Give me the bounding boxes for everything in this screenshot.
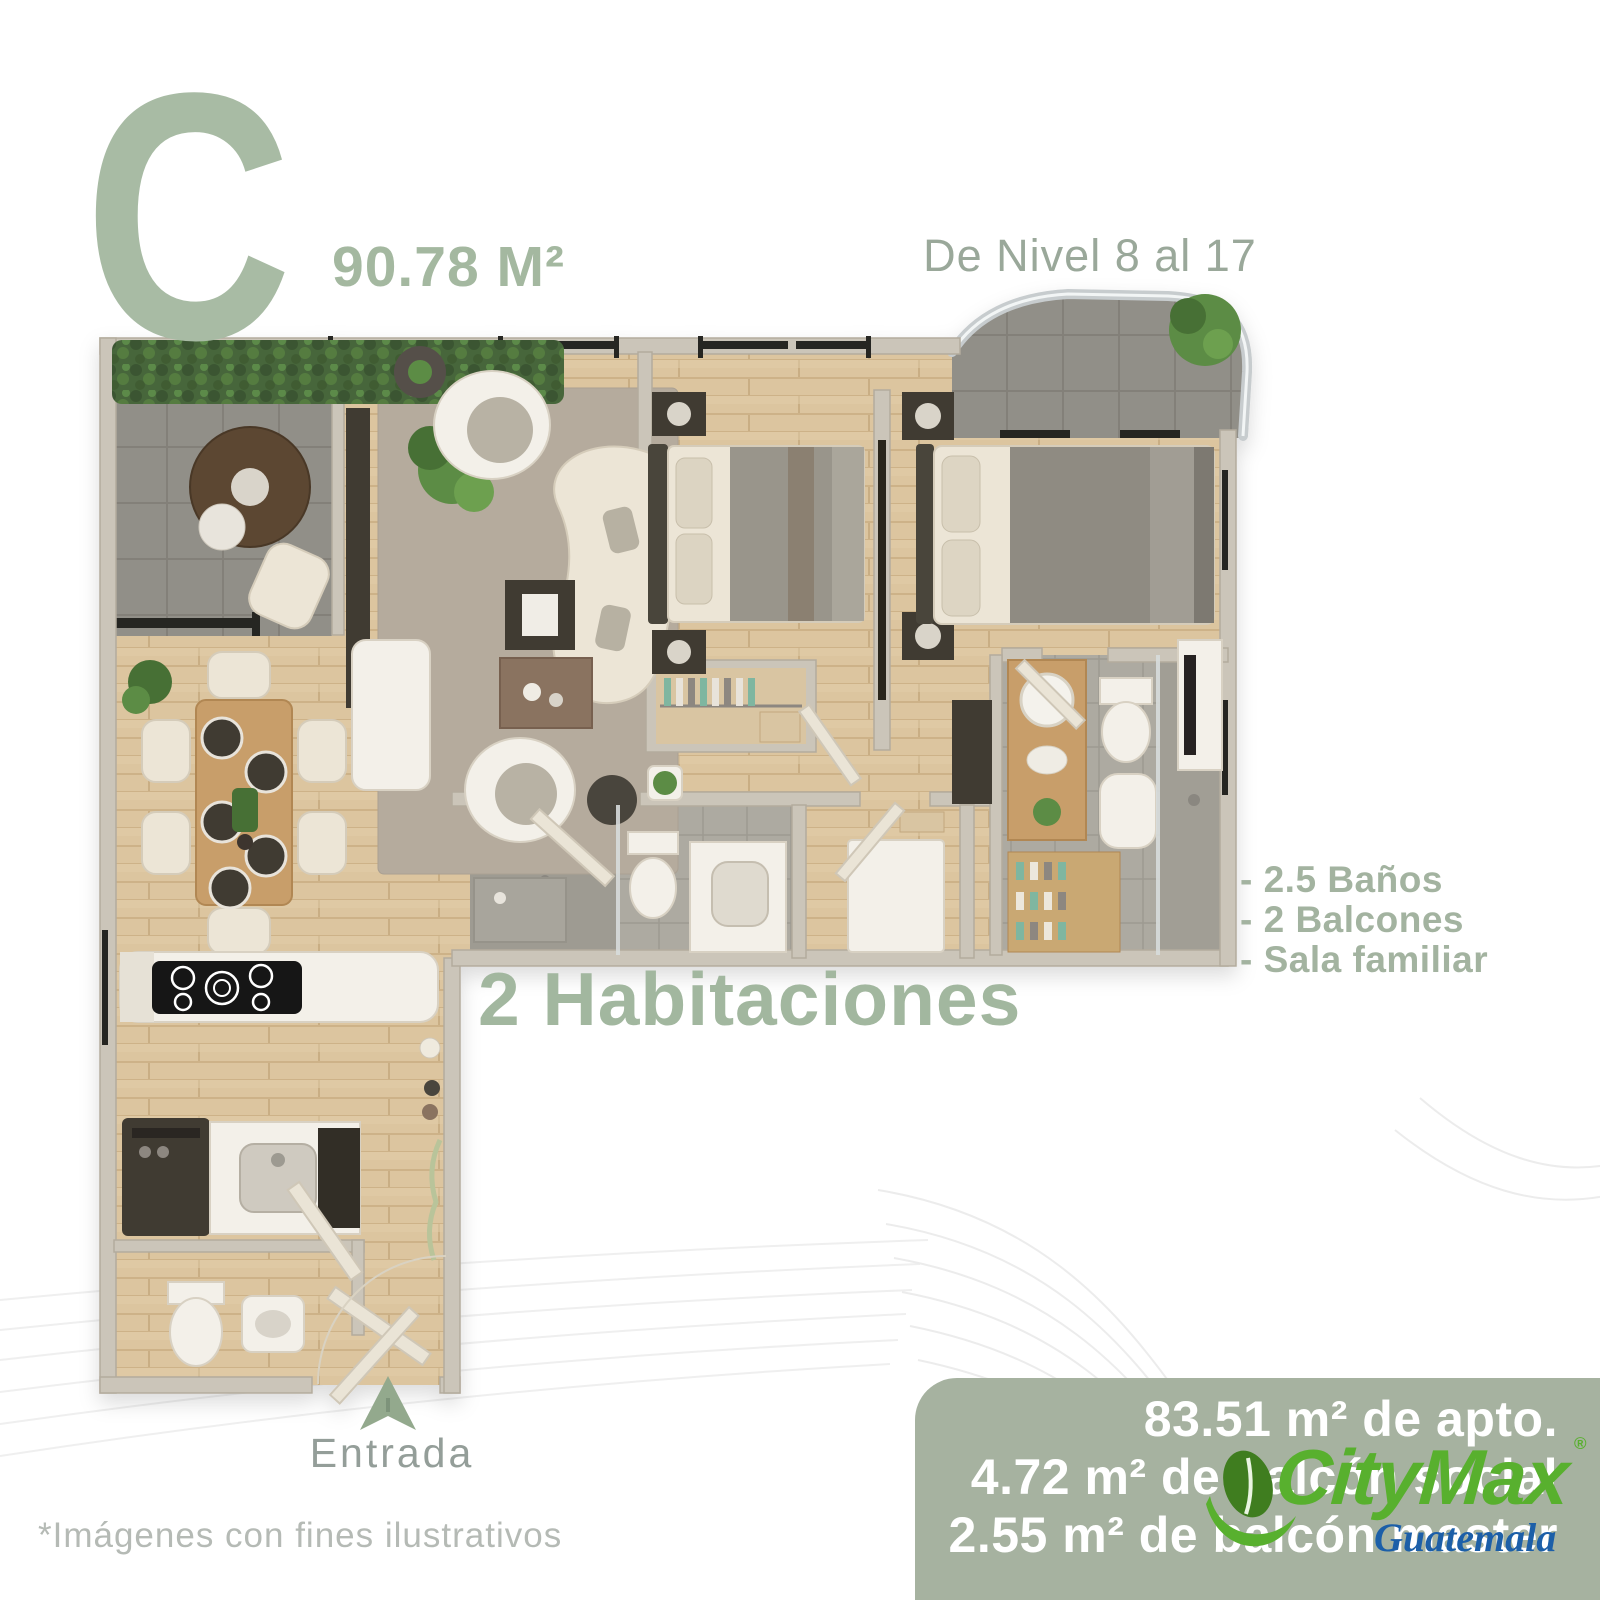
master-balcony xyxy=(952,294,1247,438)
citymax-logo: CityMax ® Guatemala xyxy=(1202,1418,1594,1568)
disclaimer-text: *Imágenes con fines ilustrativos xyxy=(38,1516,562,1556)
bedrooms-highlight: 2 Habitaciones xyxy=(478,956,1021,1042)
unit-area: 90.78 M² xyxy=(332,234,565,300)
entrance-label: Entrada xyxy=(292,1430,492,1477)
floor-plan-flyer: { "palette": { "sage": "#a8bba4", "sage_… xyxy=(0,0,1600,1600)
feature-item: - 2.5 Baños xyxy=(1240,860,1488,900)
citymax-region: Guatemala xyxy=(1374,1514,1556,1561)
feature-item: - Sala familiar xyxy=(1240,940,1488,980)
feature-item: - 2 Balcones xyxy=(1240,900,1488,940)
level-range: De Nivel 8 al 17 xyxy=(915,230,1265,282)
unit-letter: C xyxy=(84,40,288,392)
registered-mark: ® xyxy=(1574,1434,1587,1454)
citymax-wordmark: CityMax xyxy=(1273,1432,1571,1523)
feature-list: - 2.5 Baños - 2 Balcones - Sala familiar xyxy=(1240,860,1488,980)
